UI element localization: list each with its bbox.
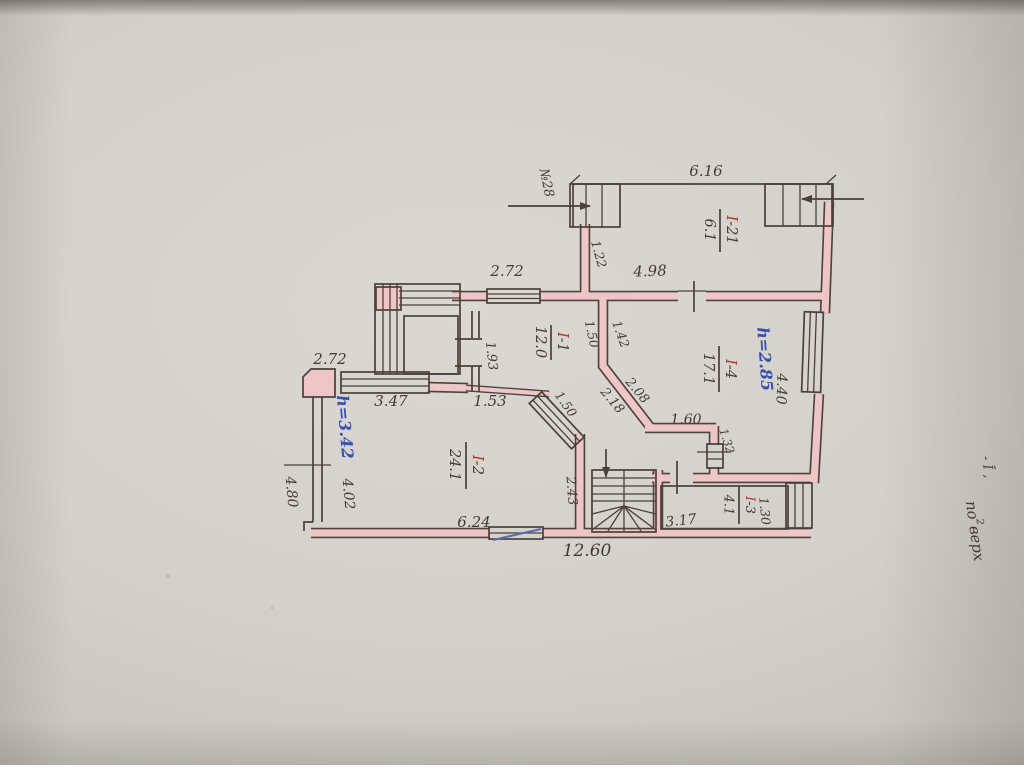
- side-note-word: по2верх: [962, 499, 991, 563]
- loggia-top-glazing: [399, 291, 460, 305]
- room1-left-partition: [455, 311, 482, 392]
- floor-plan: 6.16 №28 І-21 6.1 1.22 4.98 2.72 1.93 І-…: [0, 0, 1024, 765]
- labels: 6.16 №28 І-21 6.1 1.22 4.98 2.72 1.93 І-…: [282, 162, 997, 563]
- loggia-inner-box: [404, 316, 458, 374]
- room4-height: h=2.85: [753, 326, 776, 391]
- window-440-right: [802, 312, 824, 393]
- dim-272-top: 2.72: [489, 262, 523, 280]
- room3-number: І-3: [743, 495, 758, 514]
- dim-347: 3.47: [374, 392, 408, 410]
- paper-speck: [166, 574, 169, 577]
- dim-480: 4.80: [282, 475, 301, 509]
- room3-area: 4.1: [721, 494, 736, 516]
- paper-photo: 6.16 №28 І-21 6.1 1.22 4.98 2.72 1.93 І-…: [0, 0, 1024, 765]
- balcony-right-window-mullions: [783, 184, 816, 226]
- side-note-word-pre: по: [962, 500, 982, 521]
- room21-number: І-21: [723, 214, 739, 244]
- side-note-word-post: верх: [965, 525, 988, 563]
- dim-153: 1.53: [473, 392, 506, 410]
- room4-area: 17.1: [700, 353, 716, 385]
- side-note-floor: - Ī ‚: [978, 455, 997, 479]
- room21-suffix: -21: [723, 221, 739, 244]
- dim-402: 4.02: [339, 477, 358, 511]
- room2-area: 24.1: [446, 448, 462, 481]
- paper-speck: [271, 607, 273, 609]
- dim-440: 4.40: [772, 372, 789, 405]
- dim-624: 6.24: [457, 513, 490, 531]
- room2-number: І-2: [469, 454, 485, 475]
- dim-122: 1.22: [588, 239, 610, 270]
- dim-616: 6.16: [689, 162, 723, 180]
- window-130-right: [786, 483, 812, 528]
- staircase: [592, 449, 656, 532]
- room2-suffix: -2: [469, 461, 485, 475]
- window-bottom: [489, 527, 543, 540]
- dim-272-left: 2.72: [312, 350, 346, 368]
- window-272-top: [487, 289, 540, 303]
- balcony-block: [508, 175, 864, 227]
- room4-suffix: -4: [722, 365, 738, 379]
- room1-area: 12.0: [532, 326, 548, 358]
- dim-160: 1.60: [670, 412, 701, 428]
- dim-193: 1.93: [482, 341, 500, 371]
- room2-corner-pier: [303, 369, 335, 397]
- room1-number: І-1: [554, 331, 570, 352]
- room2-height: h=3.42: [333, 394, 358, 459]
- dim-142: 1.42: [609, 318, 633, 349]
- stair-winders: [592, 506, 656, 531]
- balcony-right-window: [765, 184, 833, 226]
- dim-150-b: 1.50: [552, 388, 580, 419]
- room1-suffix: -1: [554, 338, 570, 352]
- room21-area: 6.1: [701, 218, 717, 241]
- house-number: №28: [535, 166, 556, 198]
- room4-number: І-4: [722, 358, 738, 379]
- dim-1260: 12.60: [563, 541, 612, 561]
- window-272-left: [341, 372, 429, 393]
- dim-498: 4.98: [632, 261, 667, 280]
- room3-suffix: -3: [743, 501, 758, 514]
- left-outer-wall: [304, 397, 322, 531]
- dim-243: 2.43: [562, 475, 579, 506]
- stair-treads: [592, 470, 656, 506]
- dim-130: 1.30: [756, 496, 773, 525]
- dim-132: 1.32: [716, 427, 737, 456]
- dim-317: 3.17: [665, 511, 698, 530]
